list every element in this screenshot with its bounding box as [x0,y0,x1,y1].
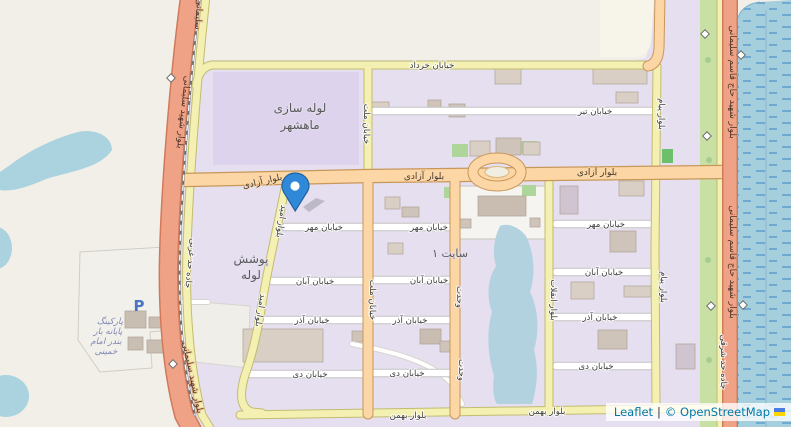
street-label-dey-r: خیابان دی [578,362,613,372]
marker-hole [290,181,299,190]
attribution-separator: | [657,403,661,421]
parking-label-3: بندر امام [90,337,122,347]
street-label-payam-s: بلوار پیام [658,271,668,303]
street-label-mehr-r: خیابان مهر [586,220,625,230]
parking-label-1: پارکینگ [97,316,124,327]
street-label-khordad: خیابان خرداد [410,61,455,71]
area-label-pipe-coating-2: لوله [241,268,261,283]
street-label-soleimani-top: سلیمانی [192,0,204,30]
street-label-mehr-l: خیابان مهر [304,223,343,233]
street-label-azar-r: خیابان آذر [582,311,618,323]
openstreetmap-link[interactable]: © OpenStreetMap [665,403,770,421]
street-label-azadi-m: بلوار آزادی [404,170,444,182]
parking-label-2: پایانه بار [93,327,124,337]
street-label-aban-r: خیابان آبان [585,266,623,278]
map-svg: خیابان خرداد خیابان تیر بلوار آزادی بلوا… [0,0,791,427]
street-label-bahman-w: بلوار بهمن [390,411,427,421]
parking-icon: P [134,297,145,315]
street-label-enqelab: بلوار انقلاب [548,279,558,320]
map-attribution: Leaflet | © OpenStreetMap [606,403,791,421]
parking-label-4: خمینی [95,347,118,357]
street-label-vahdat-s: وحدت [456,359,466,381]
street-label-bahman-e: بلوار بهمن [529,407,566,417]
street-label-tir: خیابان تیر [577,107,612,117]
street-label-mehr-m: خیابان مهر [409,223,448,233]
street-label-dey-l: خیابان دی [292,370,327,380]
street-label-dey-m: خیابان دی [389,369,424,379]
street-label-mellat-n: خیابان ملت [361,104,371,144]
street-label-azadi-e: بلوار آزادی [577,166,617,178]
street-label-aban-l: خیابان آبان [296,275,334,287]
area-label-pipe-coating-1: پوشش [234,252,269,267]
ukraine-flag-icon [774,408,785,416]
area-label-pipe-mill-2: ماهشهر [279,118,319,133]
area-label-pipe-mill-1: لوله سازی [274,101,327,116]
street-label-payam-n: بلوار پیام [656,98,666,130]
street-label-azar-l: خیابان آذر [294,314,330,326]
street-label-azar-m: خیابان آذر [392,314,428,326]
map-canvas[interactable]: خیابان خرداد خیابان تیر بلوار آزادی بلوا… [0,0,791,427]
street-label-haj-qasem-s: بلوار شهید حاج قاسم سلیمانی [727,205,737,318]
street-label-aban-m: خیابان آبان [410,274,448,286]
street-label-mellat-s: خیابان ملت [367,280,377,320]
street-label-haj-qasem-n: بلوار شهید حاج قاسم سلیمانی [727,25,737,138]
street-label-hadd-sharqi: جاده حد شرقی [718,335,728,390]
street-label-vahdat-n: وحدت [454,286,464,308]
leaflet-link[interactable]: Leaflet [614,403,653,421]
area-label-site1: سایت ۱ [432,247,468,260]
